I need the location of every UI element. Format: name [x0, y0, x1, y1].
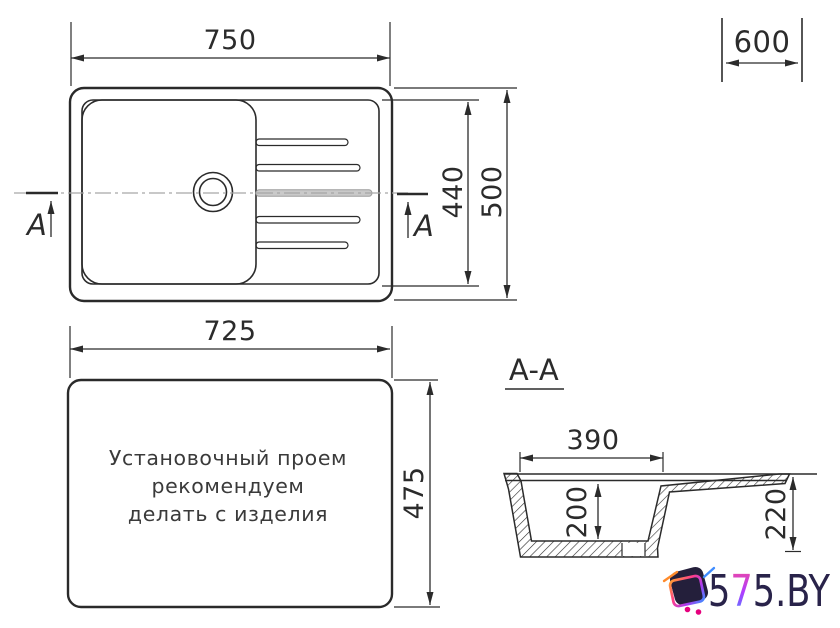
sink-bowl	[82, 100, 256, 284]
technical-drawing-canvas: 750 600 A A	[0, 0, 840, 628]
dim-220-label: 220	[761, 487, 792, 540]
dim-475-label: 475	[399, 466, 430, 519]
cart-wheel-icon	[696, 609, 702, 615]
dim-440-label: 440	[438, 165, 469, 218]
section-profile	[504, 474, 790, 558]
top-view: 750 600 A A	[14, 18, 802, 301]
dim-600-label: 600	[734, 25, 791, 59]
cutout-note-line1: Установочный проем	[109, 446, 347, 470]
section-title: A-A	[509, 353, 559, 387]
cutout-note-line2: рекомендуем	[151, 474, 304, 498]
dim-500-label: 500	[477, 165, 508, 218]
dim-750-label: 750	[203, 25, 256, 56]
logo-text: 575.BY	[708, 566, 830, 617]
drainboard-groove	[256, 165, 360, 172]
section-mark-right: A	[397, 194, 434, 243]
section-letter-right: A	[412, 209, 434, 243]
store-logo: 575.BY	[664, 565, 830, 617]
cutout-note-line3: делать с изделия	[128, 502, 328, 526]
cart-wheel-icon	[685, 607, 691, 613]
section-view: A-A 390 200 220	[504, 353, 817, 557]
logo-text-part1: 5	[708, 566, 730, 617]
drainboard-groove	[256, 217, 360, 224]
dim-390-label: 390	[566, 425, 619, 456]
section-mark-left: A	[25, 193, 58, 242]
cutout-view: Установочный проем рекомендуем делать с …	[68, 316, 440, 607]
section-letter-left: A	[25, 208, 47, 242]
logo-text-part3: 5.BY	[753, 566, 830, 617]
logo-text-part2: 7	[730, 566, 752, 617]
drain-inner-circle	[200, 179, 227, 206]
drainboard-groove	[256, 242, 348, 249]
drain-recess	[622, 543, 645, 556]
dim-200-label: 200	[562, 485, 593, 538]
drainboard-groove	[256, 139, 348, 146]
dim-725-label: 725	[203, 316, 256, 347]
sink-drawing-svg: 750 600 A A	[0, 0, 840, 628]
